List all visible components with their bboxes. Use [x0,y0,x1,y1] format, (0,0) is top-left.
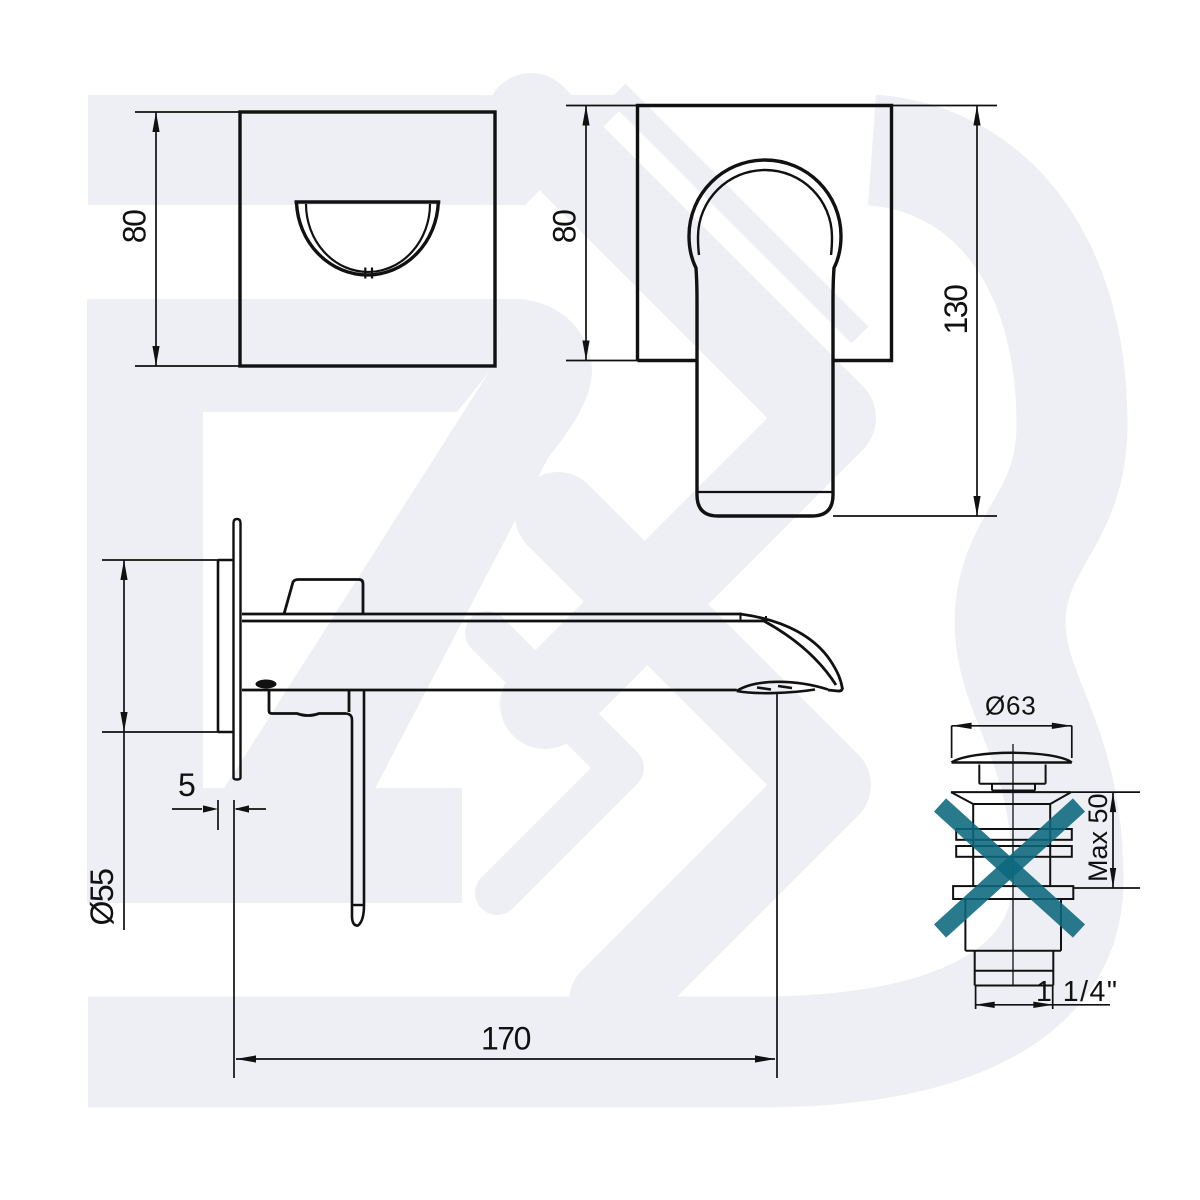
svg-text:Ø55: Ø55 [84,869,120,926]
svg-text:170: 170 [481,1021,531,1057]
svg-text:80: 80 [547,210,583,243]
svg-text:1 1/4": 1 1/4" [1036,976,1119,1008]
svg-text:5: 5 [178,767,196,803]
svg-text:80: 80 [117,210,153,243]
svg-text:130: 130 [938,285,974,335]
svg-text:Max 50: Max 50 [1083,793,1113,882]
svg-text:Ø63: Ø63 [985,691,1037,721]
